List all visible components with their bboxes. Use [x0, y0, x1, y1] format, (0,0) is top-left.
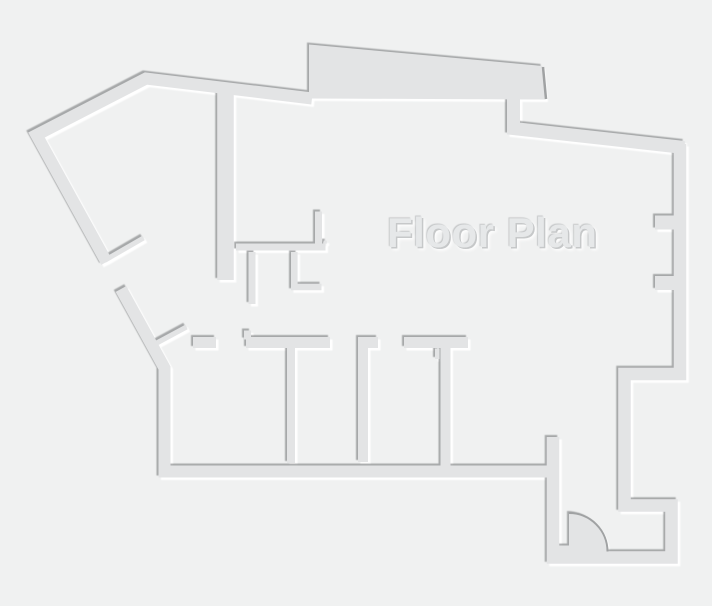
floor-plan-canvas: Floor Plan — [0, 0, 712, 606]
door-jamb-room4 — [435, 349, 440, 360]
window-jamb-upper — [655, 216, 676, 230]
page-title: Floor Plan — [387, 212, 597, 254]
floor-plan-drawing — [0, 0, 712, 606]
door-jamb-room1 — [244, 331, 251, 340]
door-hinge-stub — [558, 546, 569, 554]
hinge-dot — [324, 241, 327, 244]
window-jamb-lower — [655, 276, 676, 290]
